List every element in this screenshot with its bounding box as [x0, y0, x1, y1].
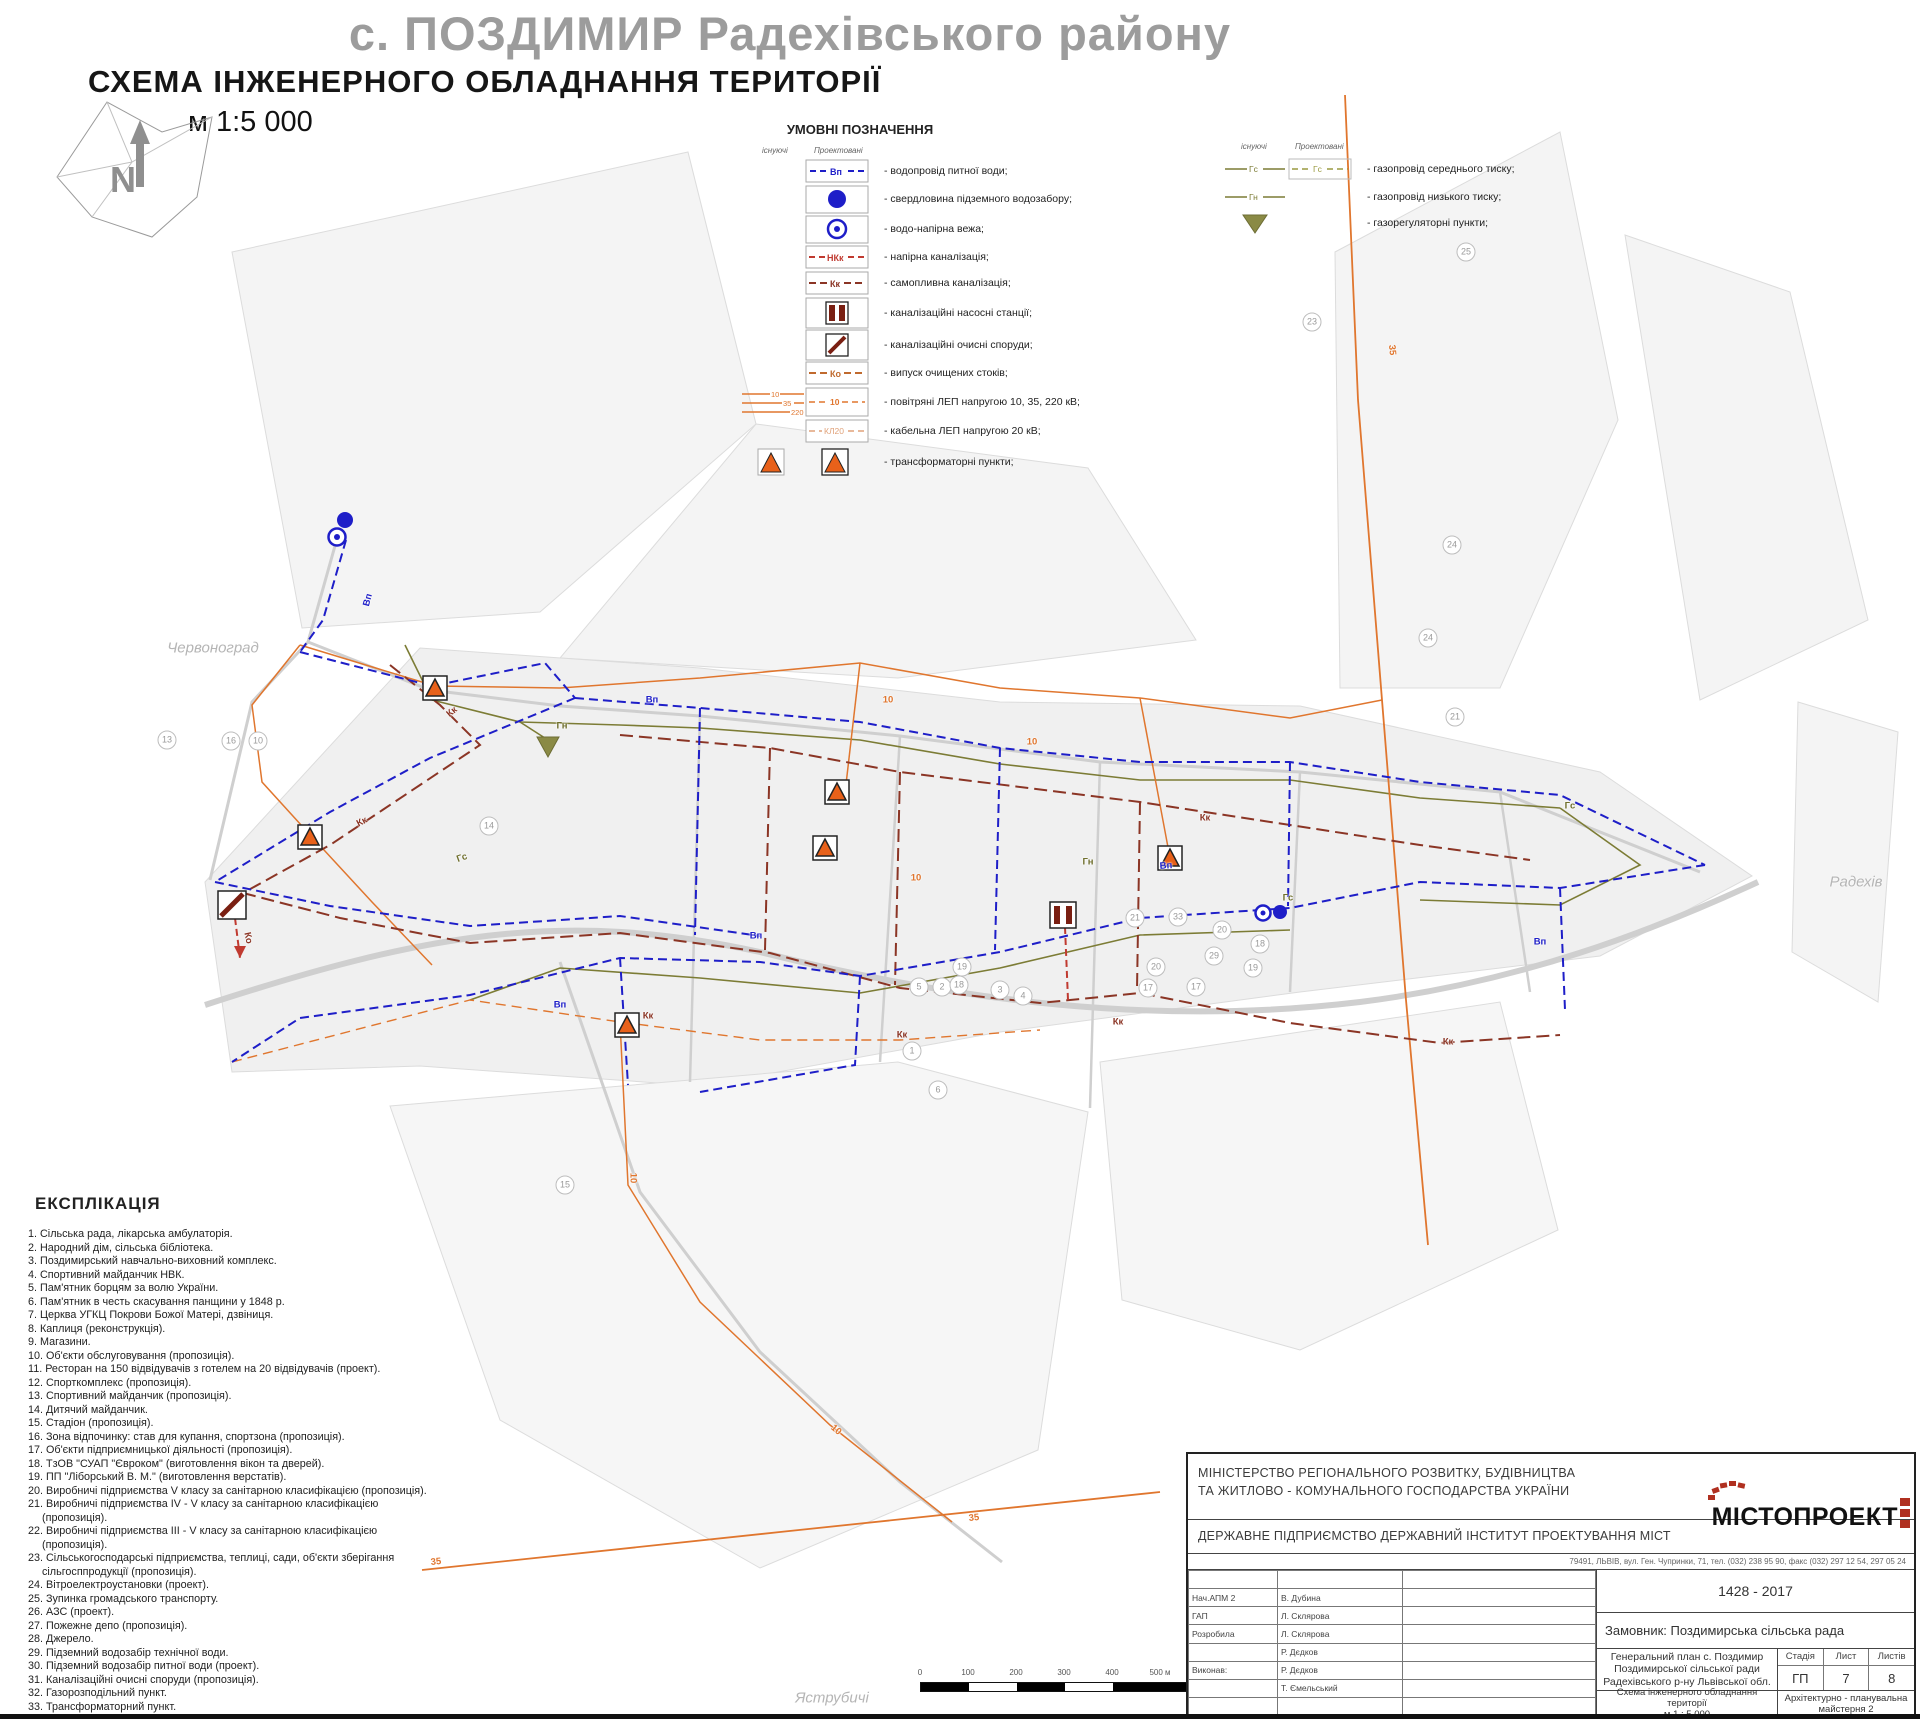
svg-text:Ко: Ко — [830, 369, 841, 379]
svg-text:220: 220 — [791, 408, 804, 417]
staff-role — [1189, 1571, 1278, 1589]
sheet-frame-line — [0, 1714, 1920, 1719]
staff-table: Нач.АПМ 2 В. Дубина ГАП Л. Склярова — [1188, 1570, 1597, 1716]
explication-item: 8. Каплиця (реконструкція). — [25, 1323, 445, 1337]
staff-spare-cell — [1403, 1571, 1596, 1589]
sheet-label: Лист — [1824, 1649, 1870, 1665]
legend-row-transformer: - трансформаторні пункти; — [740, 446, 1114, 478]
explication-item: 19. ПП "Ліборський В. М." (виготовлення … — [25, 1471, 445, 1485]
svg-text:Гс: Гс — [1249, 164, 1259, 174]
stage-label: Стадія — [1778, 1649, 1824, 1665]
logo-text: МІСТОПРОЕКТ — [1712, 1505, 1898, 1530]
legend-heading: УМОВНІ ПОЗНАЧЕННЯ — [750, 122, 970, 137]
svg-text:НКк: НКк — [827, 253, 844, 263]
explication-item: 11. Ресторан на 150 відвідувачів з готел… — [25, 1363, 445, 1377]
sewer-treatment-icon — [740, 328, 874, 362]
stage-value: ГП — [1778, 1666, 1824, 1690]
mistoproekt-logo: МІСТОПРОЕКТ — [1712, 1498, 1910, 1530]
sheet-value: 7 — [1824, 1666, 1870, 1690]
scale-bar-tick: 200 — [1009, 1668, 1022, 1677]
legend-row-water-tower: - водо-напірна вежа; — [740, 214, 1114, 244]
explication-item: 2. Народний дім, сільська бібліотека. — [25, 1242, 445, 1256]
doc-title: Схема інженерного обладнання території м… — [1597, 1691, 1777, 1716]
staff-role — [1189, 1697, 1278, 1715]
page-title: с. ПОЗДИМИР Радехівського району — [300, 6, 1280, 61]
svg-text:КЛ20: КЛ20 — [824, 426, 844, 436]
scale-bar-tick: 300 — [1057, 1668, 1070, 1677]
explication-item: 1. Сільська рада, лікарська амбулаторія. — [25, 1228, 445, 1242]
staff-spare-cell — [1403, 1661, 1596, 1679]
well-icon — [740, 184, 874, 214]
legend-row-gravity-sewer: Кк - самопливна каналізація; — [740, 270, 1114, 296]
scale-bar-tick: 500 м — [1149, 1668, 1170, 1677]
ministry-line-1: МІНІСТЕРСТВО РЕГІОНАЛЬНОГО РОЗВИТКУ, БУД… — [1198, 1464, 1734, 1482]
staff-row: Р. Дєдков — [1189, 1643, 1596, 1661]
legend-col-proposed: Проектовані — [814, 146, 863, 155]
project-title: Генеральний план с. Поздимир Поздимирськ… — [1597, 1649, 1777, 1690]
gas-low-line-icon: Гн — [1223, 186, 1357, 208]
sewer-pump-station-icon — [740, 296, 874, 330]
svg-text:Кк: Кк — [830, 279, 840, 289]
institute-address: 79491, ЛЬВІВ, вул. Ген. Чупринки, 71, те… — [1188, 1554, 1914, 1570]
staff-row: Т. Ємельський — [1189, 1679, 1596, 1697]
legend-col-existing: існуючі — [1241, 142, 1267, 151]
explication: ЕКСПЛІКАЦІЯ 1. Сільська рада, лікарська … — [25, 1194, 445, 1714]
stage-table: Стадія Лист Листів ГП 7 8 — [1777, 1649, 1914, 1690]
overhead-power-icon: 10 35 220 10 — [740, 386, 874, 418]
scale-bar-tick: 400 — [1105, 1668, 1118, 1677]
staff-row: Розробила Л. Склярова — [1189, 1625, 1596, 1643]
staff-spare-cell — [1403, 1643, 1596, 1661]
explication-item: 31. Каналізаційні очисні споруди (пропоз… — [25, 1674, 445, 1688]
staff-role: ГАП — [1189, 1607, 1278, 1625]
legend-row-gas-mid: Гс Гс - газопровід середнього тиску; — [1223, 158, 1597, 180]
gas-regulator-icon — [1223, 210, 1357, 236]
staff-role — [1189, 1643, 1278, 1661]
staff-row: Нач.АПМ 2 В. Дубина — [1189, 1589, 1596, 1607]
legend-row-outfall: Ко - випуск очищених стоків; — [740, 360, 1114, 386]
legend-row-gas-regulator: - газорегуляторні пункти; — [1223, 210, 1597, 236]
explication-item: 6. Пам'ятник в честь скасування панщини … — [25, 1296, 445, 1310]
staff-spare-cell — [1403, 1697, 1596, 1715]
explication-item: 18. ТзОВ "СУАП "Євроком" (виготовлення в… — [25, 1458, 445, 1472]
staff-name — [1278, 1697, 1403, 1715]
outfall-icon: Ко — [740, 360, 874, 386]
well-icon — [337, 512, 353, 528]
staff-role — [1189, 1679, 1278, 1697]
ministry-line-2: ТА ЖИТЛОВО - КОМУНАЛЬНОГО ГОСПОДАРСТВА У… — [1198, 1482, 1734, 1500]
staff-row: Виконав: Р. Дєдков — [1189, 1661, 1596, 1679]
scale-bar-tick: 100 — [961, 1668, 974, 1677]
explication-item: 33. Трансформаторний пункт. — [25, 1701, 445, 1715]
explication-item: 20. Виробничі підприємства V класу за са… — [25, 1485, 445, 1499]
logo-arch-icon — [1708, 1481, 1748, 1501]
gravity-sewer-icon: Кк — [740, 270, 874, 296]
explication-item: 4. Спортивний майданчик НВК. — [25, 1269, 445, 1283]
explication-item: 22. Виробничі підприємства III - V класу… — [25, 1525, 445, 1552]
legend-row-cable-power: КЛ20 - кабельна ЛЕП напругою 20 кВ; — [740, 418, 1114, 444]
explication-item: 25. Зупинка громадського транспорту. — [25, 1593, 445, 1607]
legend-row-sewer-pump: - каналізаційні насосні станції; — [740, 296, 1114, 330]
gas-mid-line-icon: Гс Гс — [1223, 158, 1357, 180]
plan-sheet: ВпВпВпВпВпВпКкКкКкКкКкКкКкГсГсГсГнГн1010… — [0, 0, 1920, 1722]
explication-item: 29. Підземний водозабір технічної води. — [25, 1647, 445, 1661]
well-icon — [1273, 905, 1287, 919]
pressure-sewer-icon: НКк — [740, 244, 874, 270]
explication-item: 21. Виробничі підприємства IV - V класу … — [25, 1498, 445, 1525]
explication-item: 7. Церква УГКЦ Покрови Божої Матері, дзв… — [25, 1309, 445, 1323]
logo-column-icon — [1900, 1498, 1910, 1530]
staff-name — [1278, 1571, 1403, 1589]
sheets-label: Листів — [1869, 1649, 1914, 1665]
staff-name: В. Дубина — [1278, 1589, 1403, 1607]
staff-row — [1189, 1571, 1596, 1589]
sewer-treatment-icon — [218, 891, 246, 919]
staff-role: Розробила — [1189, 1625, 1278, 1643]
legend-row-water-line: Вп - водопровід питної води; — [740, 158, 1114, 184]
explication-item: 17. Об'єкти підприємницької діяльності (… — [25, 1444, 445, 1458]
explication-item: 13. Спортивний майданчик (пропозиція). — [25, 1390, 445, 1404]
explication-item: 32. Газорозподільний пункт. — [25, 1687, 445, 1701]
scale-bar-tick: 0 — [918, 1668, 922, 1677]
title-block: МІСТОПРОЕКТ МІНІСТЕРСТВО РЕГІОНАЛЬНОГО Р… — [1186, 1452, 1916, 1716]
svg-text:35: 35 — [783, 399, 791, 408]
water-tower-icon — [740, 214, 874, 244]
staff-name: Л. Склярова — [1278, 1625, 1403, 1643]
water-line-icon: Вп — [740, 158, 874, 184]
svg-text:Гс: Гс — [1313, 164, 1323, 174]
staff-name: Р. Дєдков — [1278, 1661, 1403, 1679]
svg-text:10: 10 — [771, 390, 779, 399]
explication-item: 26. АЗС (проект). — [25, 1606, 445, 1620]
water-tower-icon — [1256, 906, 1271, 921]
sewer-pump-station-icon — [1050, 902, 1076, 928]
explication-item: 28. Джерело. — [25, 1633, 445, 1647]
explication-item: 30. Підземний водозабір питної води (про… — [25, 1660, 445, 1674]
legend-col-existing: існуючі — [762, 146, 788, 155]
legend-row-well: - свердловина підземного водозабору; — [740, 184, 1114, 214]
staff-spare-cell — [1403, 1679, 1596, 1697]
explication-item: 9. Магазини. — [25, 1336, 445, 1350]
explication-heading: ЕКСПЛІКАЦІЯ — [35, 1194, 445, 1214]
svg-text:N: N — [110, 159, 136, 200]
explication-item: 16. Зона відпочинку: став для купання, с… — [25, 1431, 445, 1445]
project-code: 1428 - 2017 — [1597, 1570, 1914, 1612]
svg-text:Вп: Вп — [830, 167, 842, 177]
staff-spare-cell — [1403, 1625, 1596, 1643]
staff-spare-cell — [1403, 1607, 1596, 1625]
staff-name: Р. Дєдков — [1278, 1643, 1403, 1661]
legend-col-proposed: Проектовані — [1295, 142, 1344, 151]
staff-row: ГАП Л. Склярова — [1189, 1607, 1596, 1625]
explication-list: 1. Сільська рада, лікарська амбулаторія.… — [25, 1228, 445, 1714]
legend-row-pressure-sewer: НКк - напірна каналізація; — [740, 244, 1114, 270]
staff-role: Нач.АПМ 2 — [1189, 1589, 1278, 1607]
sheets-value: 8 — [1869, 1666, 1914, 1690]
svg-text:10: 10 — [830, 397, 840, 407]
workshop: Архітектурно - планувальна майстерня 2 — [1777, 1691, 1914, 1716]
staff-row — [1189, 1697, 1596, 1715]
explication-item: 27. Пожежне депо (пропозиція). — [25, 1620, 445, 1634]
cable-power-icon: КЛ20 — [740, 418, 874, 444]
compass-rose: N — [52, 92, 217, 247]
explication-item: 23. Сільськогосподарські підприємства, т… — [25, 1552, 445, 1579]
staff-role: Виконав: — [1189, 1661, 1278, 1679]
svg-text:Гн: Гн — [1249, 192, 1258, 202]
explication-item: 12. Спорткомплекс (пропозиція). — [25, 1377, 445, 1391]
water-tower-icon — [329, 529, 346, 546]
staff-name: Л. Склярова — [1278, 1607, 1403, 1625]
transformer-icon — [740, 446, 874, 478]
staff-spare-cell — [1403, 1589, 1596, 1607]
explication-item: 14. Дитячий майданчик. — [25, 1404, 445, 1418]
legend-row-sewer-treatment: - каналізаційні очисні споруди; — [740, 328, 1114, 362]
legend-row-overhead-power: 10 35 220 10 - повітряні ЛЕП напругою 10… — [740, 386, 1114, 418]
customer: Замовник: Поздимирська сільська рада — [1597, 1612, 1914, 1648]
staff-name: Т. Ємельський — [1278, 1679, 1403, 1697]
explication-item: 10. Об'єкти обслуговування (пропозиція). — [25, 1350, 445, 1364]
explication-item: 15. Стадіон (пропозиція). — [25, 1417, 445, 1431]
explication-item: 24. Вітроелектроустановки (проект). — [25, 1579, 445, 1593]
explication-item: 5. Пам'ятник борцям за волю України. — [25, 1282, 445, 1296]
explication-item: 3. Поздимирський навчально-виховний комп… — [25, 1255, 445, 1269]
legend-row-gas-low: Гн - газопровід низького тиску; — [1223, 186, 1597, 208]
